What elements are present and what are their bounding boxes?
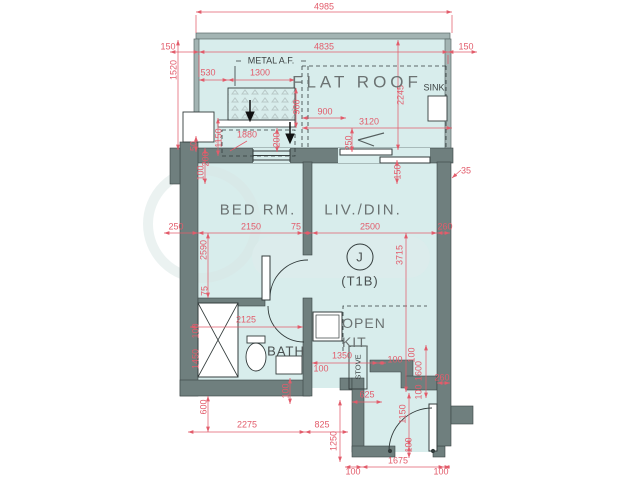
dim-2125-28: 2125	[236, 316, 256, 325]
dim-1350-31: 1350	[332, 352, 352, 361]
room-open-8: OPEN	[342, 316, 386, 330]
dim-75-22: 75	[291, 223, 301, 232]
dim-825-42: 825	[314, 421, 329, 430]
dim-100-32: 100	[387, 356, 402, 365]
dim-100-29: 100	[192, 323, 201, 338]
dim-1250-40: 1250	[330, 431, 339, 451]
dim-100-48: 100	[433, 468, 448, 477]
dim-1675-46: 1675	[388, 457, 408, 466]
dim-100-33: 100	[313, 365, 328, 374]
dim-2500-23: 2500	[360, 223, 380, 232]
room-sink-2: SINK	[423, 84, 444, 93]
bedroom-window	[253, 149, 290, 162]
dim-100-45: 100	[405, 437, 414, 452]
shower	[198, 303, 238, 377]
dim-1520-4: 1520	[170, 60, 179, 80]
dim-4835-2: 4835	[314, 43, 334, 52]
bath-sink	[276, 356, 302, 374]
dim-1150-13: 1150	[215, 128, 224, 147]
dim-1450-30: 1450	[192, 349, 201, 369]
dim-600-39: 600	[200, 399, 209, 414]
dim-625-43: 625	[359, 391, 374, 400]
dim-260-24: 260	[437, 223, 452, 232]
dim-530-5: 530	[200, 69, 215, 78]
bedroom-door-leaf	[262, 256, 270, 300]
dim-150-18: 150	[394, 164, 403, 179]
dim-900-8: 900	[293, 99, 302, 114]
room-stove-10: STOVE	[354, 354, 362, 379]
dim-1150-44: 1150	[399, 404, 408, 423]
room-j-5: J	[356, 251, 364, 264]
dim-250-20: 250	[168, 223, 183, 232]
room-metalaf-1: METAL A.F.	[248, 57, 295, 66]
dim-2150-21: 2150	[241, 223, 261, 232]
dim-200-12: 200	[273, 132, 282, 147]
level-arrow	[452, 170, 461, 178]
room-kit-9: KIT.	[342, 335, 370, 349]
sink-fixture	[428, 96, 447, 121]
fridge	[313, 312, 342, 341]
dim-200-15: 200	[202, 151, 211, 166]
toilet	[246, 336, 266, 371]
dim-150-3: 150	[458, 43, 473, 52]
floor-plan-canvas: 4985150483515015205301300224590090031201…	[0, 0, 640, 480]
duct-box	[183, 112, 214, 142]
dim-100-47: 100	[345, 468, 360, 477]
ac-platform	[228, 88, 295, 120]
dim-3715-26: 3715	[396, 245, 405, 265]
dim-100-16: 100	[197, 165, 206, 180]
entrance-door-leaf	[429, 404, 437, 451]
ac-shelf	[218, 120, 295, 127]
dim-2590-25: 2590	[200, 240, 209, 260]
room-flatroof-0: FLAT ROOF	[292, 74, 422, 91]
dim-1600-36: 1600	[415, 361, 424, 381]
dim-250-17: 250	[345, 135, 354, 150]
dim-100-37: 100	[415, 384, 424, 399]
room-livdin-4: LIV./DIN.	[324, 203, 401, 218]
door-hinge-dot	[431, 449, 434, 452]
dim-3120-10: 3120	[359, 118, 379, 127]
dim-50-14: 50	[190, 141, 199, 151]
room-bath-7: BATH	[267, 345, 305, 358]
dim-4985-0: 4985	[314, 3, 334, 12]
dim-150-1: 150	[160, 43, 175, 52]
dim-260-38: 260	[434, 374, 449, 383]
dim-900-9: 900	[317, 108, 332, 117]
dim-1880-11: 1880	[237, 131, 257, 140]
dim-100-34: 100	[282, 383, 291, 398]
dim-2275-41: 2275	[237, 421, 257, 430]
door-hinge-dot	[388, 449, 391, 452]
dim-75-27: 75	[201, 286, 210, 296]
dim-35-19: 35	[461, 167, 471, 176]
dim-1300-6: 1300	[250, 69, 270, 78]
room-t1b-6: (T1B)	[341, 275, 379, 288]
room-bedrm-3: BED RM.	[220, 203, 297, 218]
